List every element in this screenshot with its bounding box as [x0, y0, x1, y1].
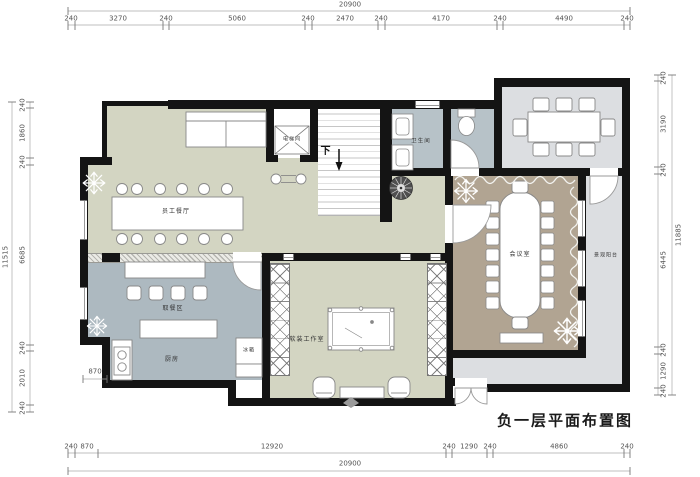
window — [283, 254, 294, 260]
floor-staff-dining-upper — [104, 104, 268, 166]
dim-left: 240 — [20, 98, 27, 111]
wall — [262, 253, 270, 406]
dim-top: 4170 — [432, 16, 450, 23]
wall-meeting-bottom — [445, 350, 586, 358]
floor-hall-below-elevator — [264, 158, 320, 255]
dim-top: 240 — [301, 16, 314, 23]
dim-top: 5060 — [228, 16, 246, 23]
floor-bathroom-sinks — [390, 104, 445, 170]
dim-bottom-total: 20900 — [339, 461, 361, 468]
room-label-kitchen: 厨房 — [165, 357, 179, 363]
dim-bottom: 240 — [64, 444, 77, 451]
wall — [622, 78, 630, 176]
room-label-serving: 取餐区 — [162, 306, 183, 312]
wall — [380, 168, 451, 176]
dim-top: 2470 — [336, 16, 354, 23]
dim-bottom: 12920 — [261, 444, 283, 451]
room-label-staff-dining: 员工餐厅 — [162, 209, 190, 215]
wall-balcony-bottom — [487, 384, 630, 392]
dim-right: 240 — [661, 384, 668, 397]
window — [430, 254, 441, 260]
window — [400, 254, 411, 260]
dim-right: 6445 — [661, 251, 668, 269]
wall-elevator — [266, 100, 274, 162]
dim-right: 3190 — [661, 115, 668, 133]
floor-serving-area — [84, 255, 266, 339]
floor-meeting-room — [451, 172, 582, 352]
dim-top: 4490 — [555, 16, 573, 23]
dim-left: 240 — [20, 155, 27, 168]
dim-left: 1860 — [20, 124, 27, 142]
window — [578, 300, 585, 337]
room-label-studio: 软装工作室 — [289, 337, 324, 343]
floor-studio — [264, 255, 449, 402]
dim-bottom: 240 — [620, 444, 633, 451]
dim-left-total: 11515 — [3, 246, 10, 268]
dim-top: 240 — [620, 16, 633, 23]
room-label-bathroom: 卫生间 — [411, 139, 431, 145]
dim-left: 6685 — [20, 246, 27, 264]
window — [578, 250, 585, 287]
wall — [443, 104, 451, 168]
dim-top: 240 — [64, 16, 77, 23]
dim-top: 240 — [493, 16, 506, 23]
door-opening — [451, 168, 479, 176]
wall — [102, 253, 120, 262]
floor-upper-dining-room — [500, 82, 626, 170]
door-opening — [590, 168, 618, 176]
wall — [102, 380, 236, 388]
dim-top: 240 — [374, 16, 387, 23]
dim-right: 1290 — [661, 362, 668, 380]
dim-bottom: 4860 — [550, 444, 568, 451]
dim-right: 240 — [661, 71, 668, 84]
wall — [300, 155, 318, 162]
dim-kitchen-offset: 870 — [88, 369, 101, 376]
wall-top-right — [494, 78, 630, 87]
dim-bottom: 240 — [483, 444, 496, 451]
wall-elevator — [310, 100, 318, 162]
wall-balcony-right — [622, 168, 630, 392]
dim-bottom: 870 — [80, 444, 93, 451]
staircase — [318, 108, 380, 216]
wall — [494, 84, 502, 176]
dim-right: 240 — [661, 163, 668, 176]
door-opening — [455, 378, 487, 392]
dim-top-total: 20900 — [339, 2, 361, 9]
wall — [168, 100, 502, 109]
wall — [102, 101, 172, 106]
stair-down-label: 下 — [321, 147, 332, 157]
dim-top: 240 — [159, 16, 172, 23]
window — [80, 287, 87, 320]
dim-right-total: 11885 — [676, 224, 683, 246]
dim-left: 2010 — [20, 369, 27, 387]
dim-left: 240 — [20, 401, 27, 414]
floor-elevator-shaft — [272, 104, 312, 156]
wall — [266, 155, 278, 162]
room-label-balcony: 景观阳台 — [594, 254, 618, 259]
door-opening — [233, 252, 261, 262]
floor-bathroom-toilet — [449, 104, 496, 170]
dim-top: 3270 — [109, 16, 127, 23]
floor-plan: 员工餐厅 电梯间 下 卫生间 会议室 景观阳台 取餐区 厨房 冰箱 软装工作室 … — [0, 0, 700, 477]
window — [80, 200, 87, 240]
page-title: 负一层平面布置图 — [497, 410, 633, 431]
floor-fridge-nook — [230, 335, 266, 380]
dim-right: 240 — [661, 343, 668, 356]
floor-balcony-right — [584, 172, 626, 386]
door-opening — [445, 205, 453, 243]
dim-left: 240 — [20, 341, 27, 354]
studio-cabinet-right — [427, 263, 447, 376]
wall-stair-right — [380, 100, 392, 222]
dim-bottom: 240 — [442, 444, 455, 451]
studio-cabinet-left — [270, 263, 290, 376]
window — [578, 200, 585, 237]
room-label-fridge: 冰箱 — [243, 349, 255, 354]
wall — [102, 101, 107, 161]
floor-hall-bath-front — [388, 172, 448, 255]
room-label-meeting: 会议室 — [509, 252, 530, 258]
room-label-elevator: 电梯间 — [282, 138, 302, 143]
window — [415, 101, 440, 108]
dim-bottom: 1290 — [460, 444, 478, 451]
wall — [445, 378, 455, 386]
